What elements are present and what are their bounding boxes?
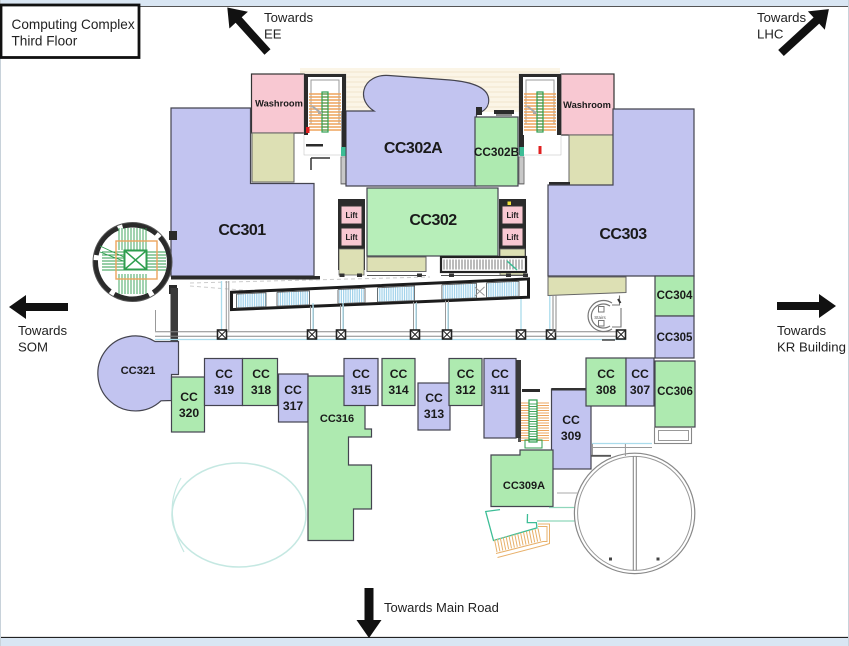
svg-text:Towards: Towards	[264, 10, 314, 25]
svg-text:314: 314	[388, 383, 409, 397]
svg-text:CC: CC	[180, 390, 198, 404]
svg-text:KR Building: KR Building	[777, 340, 846, 355]
svg-text:Stairs: Stairs	[594, 315, 606, 320]
svg-text:CC321: CC321	[121, 365, 156, 377]
svg-text:SOM: SOM	[18, 340, 48, 355]
svg-text:Lift: Lift	[506, 233, 519, 242]
svg-text:Washroom: Washroom	[563, 100, 611, 110]
svg-text:308: 308	[596, 383, 617, 397]
svg-text:CC305: CC305	[657, 332, 693, 344]
svg-text:309: 309	[561, 429, 582, 443]
svg-text:CC: CC	[284, 383, 302, 397]
svg-text:CC302B: CC302B	[474, 145, 519, 159]
svg-text:CC316: CC316	[320, 413, 354, 425]
svg-text:CC: CC	[457, 367, 475, 381]
svg-text:Computing Complex: Computing Complex	[12, 17, 135, 32]
svg-text:CC309A: CC309A	[503, 480, 545, 492]
svg-text:CC: CC	[631, 367, 649, 381]
svg-text:CC304: CC304	[657, 290, 693, 302]
svg-text:313: 313	[424, 407, 445, 421]
svg-text:Lift: Lift	[345, 211, 358, 220]
svg-text:CC301: CC301	[218, 222, 266, 239]
svg-text:CC302A: CC302A	[384, 140, 443, 157]
svg-text:318: 318	[251, 383, 272, 397]
svg-text:312: 312	[455, 383, 476, 397]
svg-text:Lift: Lift	[345, 233, 358, 242]
svg-text:317: 317	[283, 399, 304, 413]
svg-text:CC306: CC306	[657, 386, 693, 398]
svg-text:CC303: CC303	[599, 226, 647, 243]
svg-text:Towards: Towards	[757, 10, 807, 25]
svg-text:315: 315	[351, 383, 372, 397]
svg-text:Lift: Lift	[506, 211, 519, 220]
svg-text:319: 319	[214, 383, 235, 397]
svg-text:CC: CC	[390, 367, 408, 381]
svg-text:311: 311	[490, 383, 510, 397]
svg-text:Towards: Towards	[777, 323, 827, 338]
svg-text:CC: CC	[425, 391, 443, 405]
svg-text:CC302: CC302	[409, 212, 457, 229]
svg-text:307: 307	[630, 383, 651, 397]
svg-text:CC: CC	[491, 367, 509, 381]
svg-text:CC: CC	[562, 413, 580, 427]
svg-text:Towards Main Road: Towards Main Road	[384, 600, 499, 615]
svg-text:320: 320	[179, 406, 200, 420]
svg-text:LHC: LHC	[757, 27, 784, 42]
svg-text:CC: CC	[252, 367, 270, 381]
svg-text:CC: CC	[597, 367, 615, 381]
svg-text:CC: CC	[352, 367, 370, 381]
svg-text:Third Floor: Third Floor	[12, 34, 78, 49]
svg-text:CC: CC	[215, 367, 233, 381]
svg-text:EE: EE	[264, 27, 282, 42]
svg-text:Towards: Towards	[18, 323, 68, 338]
svg-text:Washroom: Washroom	[255, 98, 303, 108]
